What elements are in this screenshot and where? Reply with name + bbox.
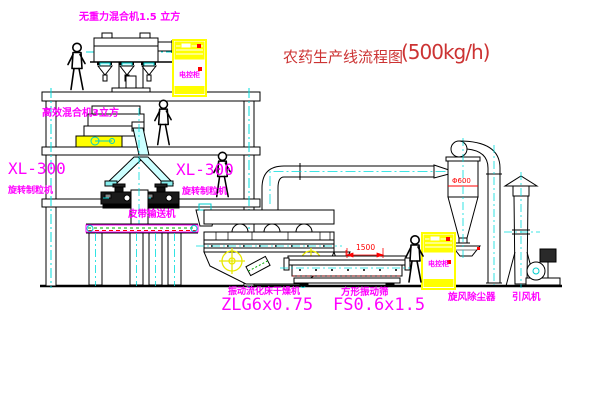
fan-label: 引风机 — [512, 293, 541, 303]
cyclone-diameter-dim: Φ600 — [452, 178, 471, 185]
gravity-free-mixer-label: 无重力混合机1.5 立方 — [79, 13, 180, 23]
person-roof — [68, 43, 85, 89]
cyclone-label: 旋风除尘器 — [448, 293, 496, 303]
exhaust-duct — [262, 163, 456, 210]
granulator-mid-model-label: XL-300 — [176, 162, 234, 178]
control-cabinet-upper — [173, 40, 206, 96]
belt-conveyor-label: 皮带输送机 — [128, 210, 176, 220]
high-efficiency-mixer-label: 高效混合机3立方 — [42, 109, 119, 119]
induced-draft-fan-drawing — [526, 249, 560, 285]
belt-conveyor-drawing — [86, 224, 198, 233]
granulator-left-name-label: 旋转制粒机 — [8, 187, 53, 196]
sieve-length-dim: 1500 — [356, 244, 375, 252]
granulator-mid-name-label: 旋转制粒机 — [182, 188, 227, 197]
diagram-title: 农药生产线流程图 — [283, 50, 403, 65]
dryer-model-label: ZLG6x0.75 — [221, 297, 313, 314]
diagram-capacity: (500kg/h) — [401, 42, 489, 62]
control-cabinet-lower-label: 电控柜 — [428, 261, 449, 268]
granulator-left-model-label: XL-300 — [8, 161, 66, 177]
process-flow-diagram: 农药生产线流程图 (500kg/h) 无重力混合机1.5 立方 高效混合机3立方… — [0, 0, 600, 403]
gravity-free-mixer-drawing — [86, 33, 176, 92]
control-cabinet-upper-label: 电控柜 — [179, 72, 200, 79]
sieve-model-label: FS0.6x1.5 — [333, 297, 425, 314]
conveyor-support-columns — [89, 233, 181, 286]
person-floor2 — [155, 100, 171, 144]
